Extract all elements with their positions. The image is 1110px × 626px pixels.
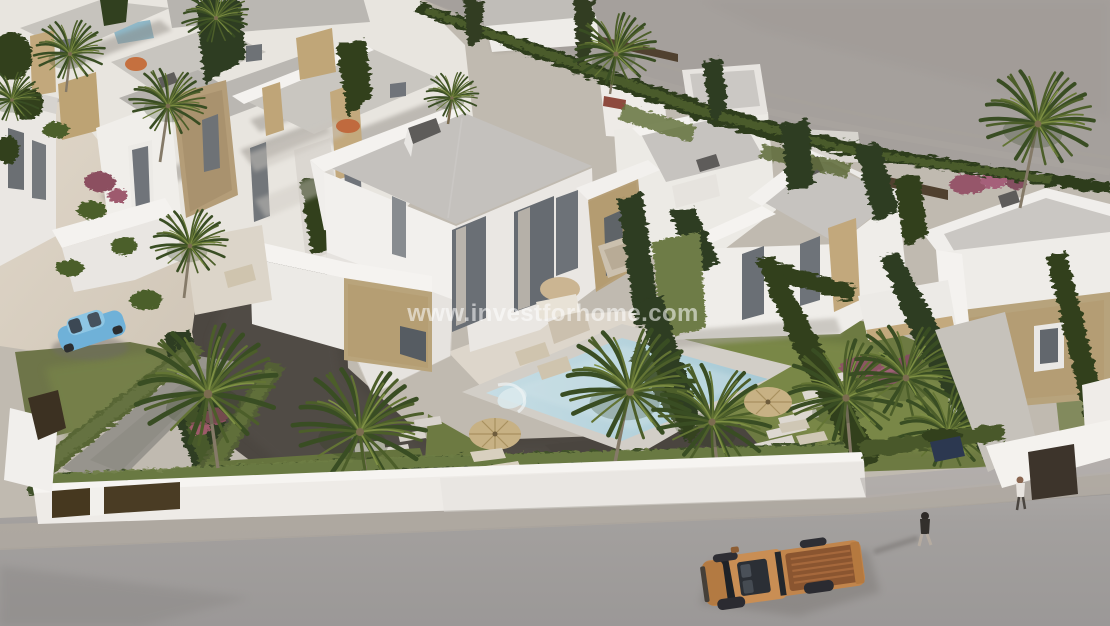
svg-text:www.investforhome.com: www.investforhome.com bbox=[406, 300, 699, 327]
